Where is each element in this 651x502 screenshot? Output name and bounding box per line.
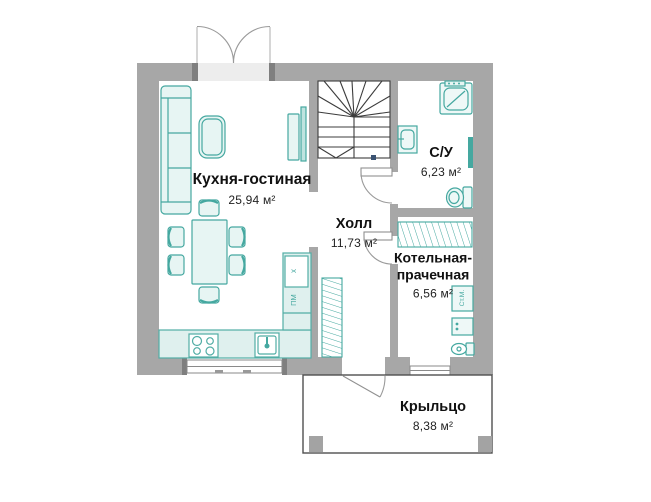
bathroom-fixtures xyxy=(398,81,473,208)
wall-hall-boiler-lower xyxy=(390,264,398,357)
kitchen-window-icon xyxy=(187,360,282,373)
boiler-window-icon xyxy=(410,366,450,375)
dining-chair xyxy=(229,255,245,275)
porch-outline xyxy=(303,375,492,453)
wall-top xyxy=(137,63,493,81)
kitchen-sink-icon xyxy=(255,333,279,357)
porch-pillar-right xyxy=(478,436,492,452)
boiler-shelf-icon xyxy=(398,222,472,247)
laundry-sink-icon xyxy=(452,343,475,355)
stair-newel-post xyxy=(371,155,376,160)
wall-right xyxy=(473,63,493,375)
wall-left xyxy=(137,63,159,375)
kitchen-counter-bottom xyxy=(159,330,311,358)
door-jamb xyxy=(192,63,198,81)
boiler-unit-icon xyxy=(452,318,473,335)
porch-pillar-left xyxy=(309,436,323,452)
door-opening xyxy=(342,357,385,375)
entry-double-door-icon xyxy=(197,27,270,64)
towel-radiator-icon xyxy=(468,137,473,168)
wall-kitchen-hall-upper xyxy=(309,81,318,192)
entry-threshold xyxy=(197,63,270,81)
window-jamb xyxy=(182,357,187,375)
tv-unit xyxy=(288,107,306,161)
dining-chair xyxy=(199,200,219,216)
window-jamb xyxy=(282,357,287,375)
staircase xyxy=(318,81,390,160)
boiler-door-icon xyxy=(364,232,392,264)
stove-icon xyxy=(189,334,218,357)
hall-closet-icon xyxy=(322,278,342,357)
bathroom-door-icon xyxy=(361,168,392,203)
dishwasher-label: ПМ xyxy=(289,294,298,306)
dining-chair xyxy=(168,227,184,247)
dining-chair xyxy=(229,227,245,247)
toilet-icon xyxy=(447,187,473,208)
fridge-label: х xyxy=(289,269,298,273)
sofa xyxy=(161,86,191,214)
dining-chair xyxy=(199,287,219,303)
wall-bathroom-boiler xyxy=(398,208,473,217)
wall-hall-bathroom xyxy=(390,81,398,172)
floor-plan: х ПМ Ст.М. Кухня-гостиная 25,94 м² Холл … xyxy=(0,0,651,502)
dining-table xyxy=(192,220,227,284)
washing-machine-label: Ст.М. xyxy=(459,290,466,307)
wall-hall-boiler-upper xyxy=(390,204,398,236)
shower-icon xyxy=(440,81,472,114)
dining-chair xyxy=(168,255,184,275)
coffee-table xyxy=(199,116,225,158)
tv-icon xyxy=(301,107,306,161)
door-jamb xyxy=(269,63,275,81)
bathroom-sink-icon xyxy=(398,126,417,153)
floor-plan-canvas: х ПМ Ст.М. xyxy=(0,0,651,502)
